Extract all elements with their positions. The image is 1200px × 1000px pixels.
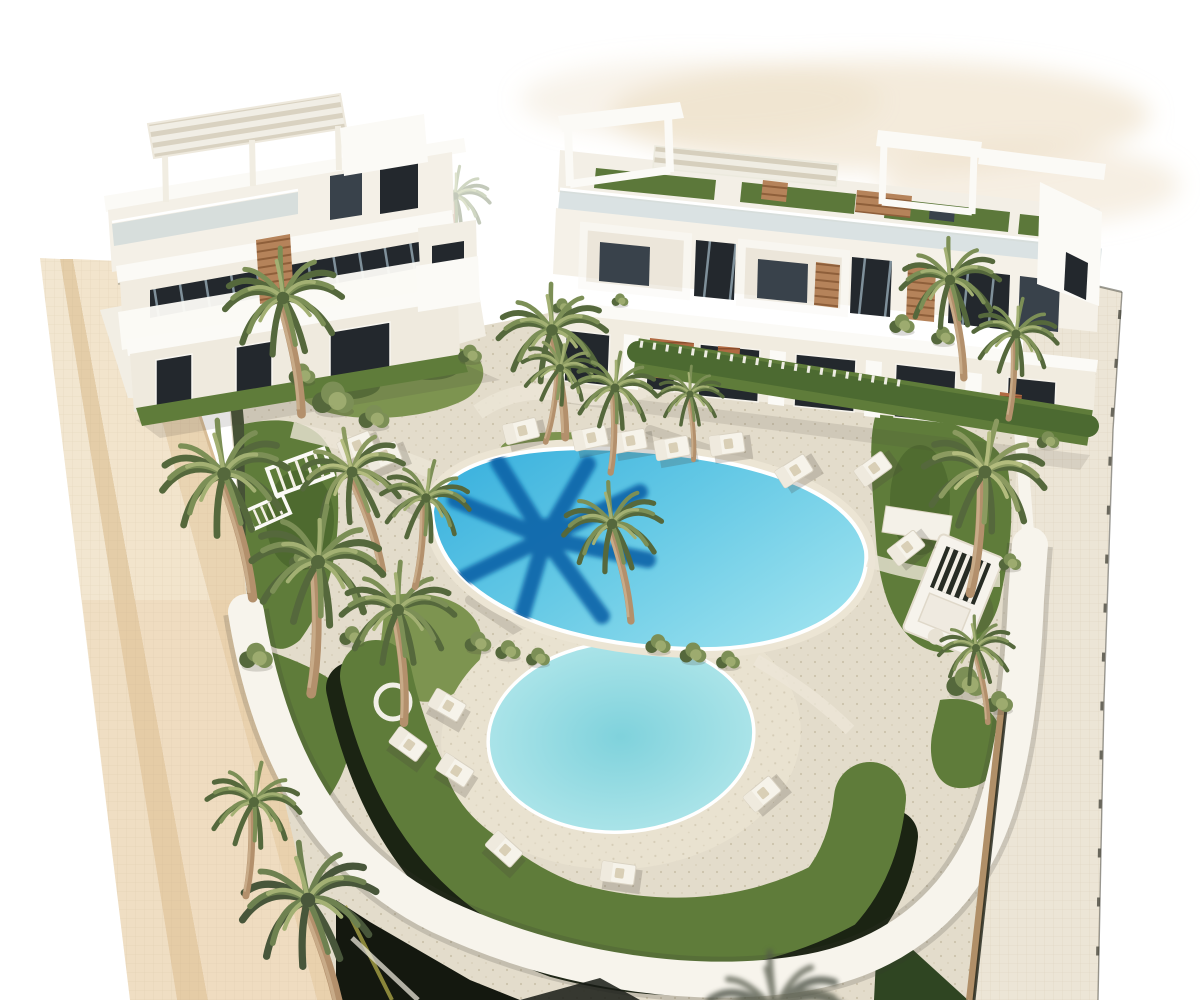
window bbox=[599, 242, 650, 286]
sun-lounger bbox=[709, 431, 753, 464]
window bbox=[757, 259, 808, 303]
wooden-stair bbox=[814, 262, 840, 308]
shadow-core bbox=[525, 518, 565, 558]
architectural-render bbox=[0, 0, 1200, 1000]
terrace-door bbox=[330, 171, 362, 220]
render-canvas bbox=[0, 0, 1200, 1000]
window bbox=[694, 240, 736, 300]
window bbox=[850, 257, 892, 317]
roof-stair-bulkhead bbox=[761, 180, 788, 202]
